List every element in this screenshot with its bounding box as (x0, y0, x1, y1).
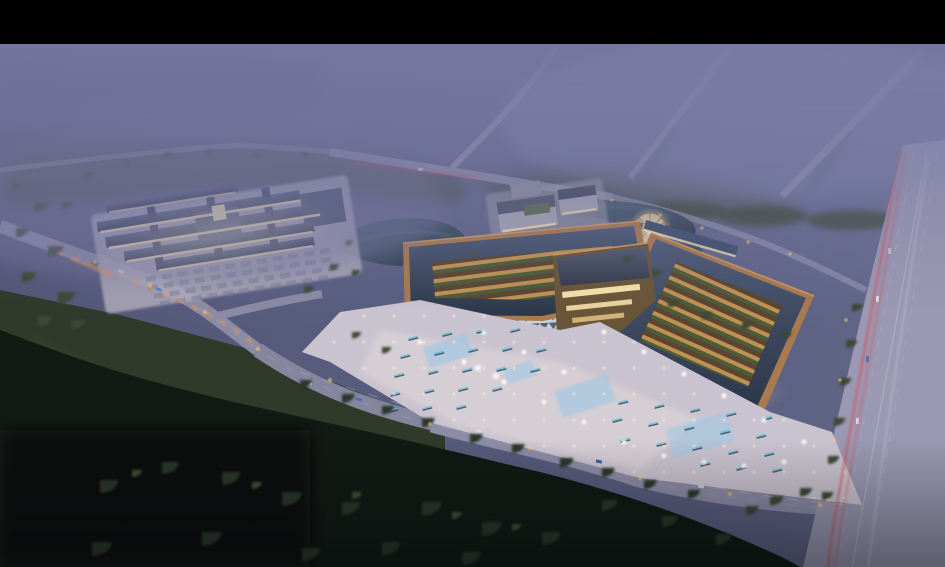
aerial-rendering (0, 0, 945, 567)
fog-overlay (0, 40, 945, 567)
letterbox-top-bar (0, 0, 945, 44)
scene-canvas (0, 0, 945, 567)
